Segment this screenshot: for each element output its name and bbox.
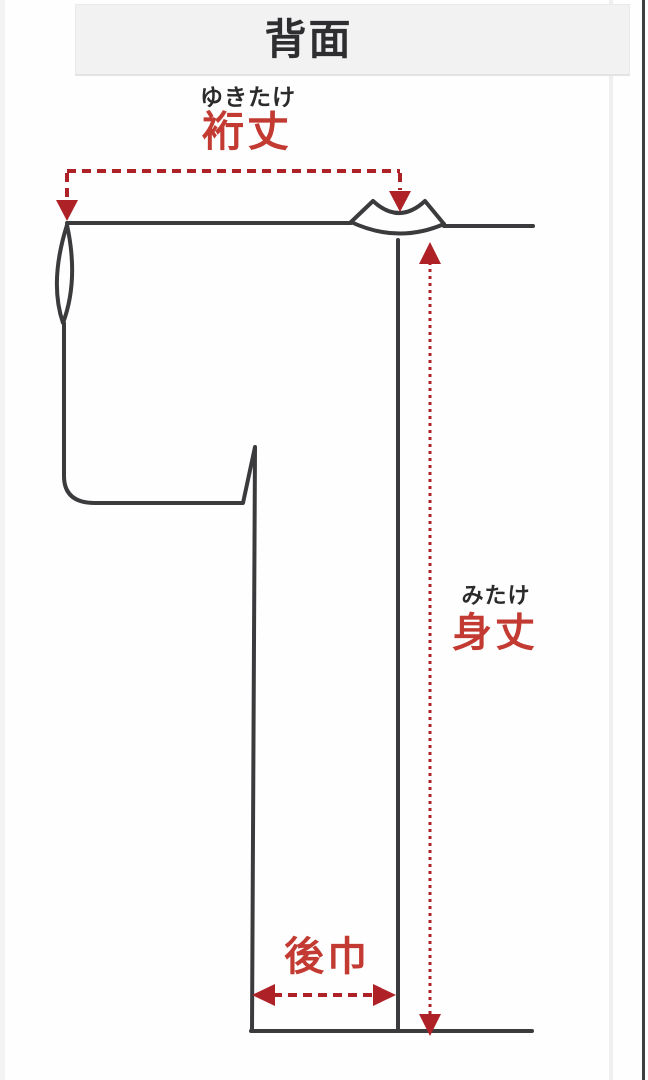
measurement-arrowheads	[56, 191, 441, 1036]
sleeve-opening-loop	[57, 225, 72, 323]
arrow-right-icon	[373, 984, 396, 1006]
arrow-down-icon	[56, 200, 78, 221]
arrow-down-icon	[389, 191, 411, 212]
arrow-up-icon	[419, 242, 441, 264]
collar-bottom-edge	[351, 222, 444, 234]
garment-outline	[57, 201, 533, 1031]
arrow-left-icon	[252, 984, 275, 1006]
kimono-outline-svg	[0, 0, 648, 1080]
sleeve-and-side-seam	[64, 323, 255, 1031]
kimono-back-measurement-diagram: 背面 ゆきたけ 裄丈 みたけ 身丈 後巾	[0, 0, 648, 1080]
measurement-lines	[67, 171, 430, 1015]
